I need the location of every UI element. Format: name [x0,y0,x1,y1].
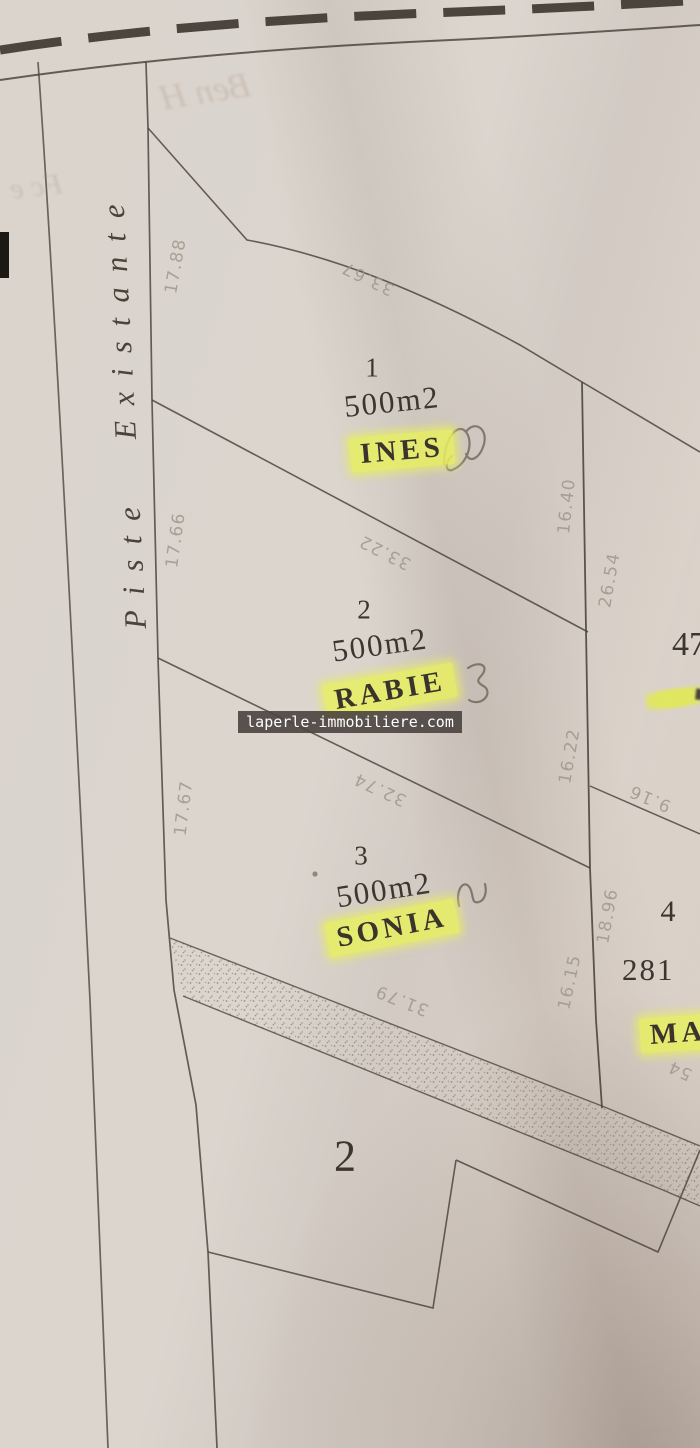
plot1-number: 1 [365,353,379,384]
cadastral-plan-photo: Ben H Fc e Piste Existante 1 500m2 INES … [0,0,700,1448]
parcel47-cut-letter-mark [695,688,700,700]
plot3-number: 3 [354,841,368,872]
handwritten-squiggle-plot3 [458,884,486,906]
plot4-name-highlight-partial: MA [639,1013,700,1053]
handwritten-dot-plot3 [312,871,317,876]
plot4-number: 4 [661,895,676,929]
plot4-area-partial: 281 [622,952,675,988]
plot2-number: 2 [357,595,371,626]
watermark-bar: laperle-immobiliere.com [238,711,462,733]
plots-east-boundary-line [582,382,602,1108]
top-road-dashed-line [0,0,700,50]
parcel47-number-partial: 47 [672,626,700,664]
piste-outer-edge-line [38,62,108,1448]
bleedthrough-writing-2: Fc e [8,167,64,206]
photo-edge-mark [0,232,9,278]
stippled-track-fill [170,938,700,1206]
outside-parcel-number: 2 [334,1131,356,1182]
handwritten-squiggle-plot2 [468,664,487,702]
